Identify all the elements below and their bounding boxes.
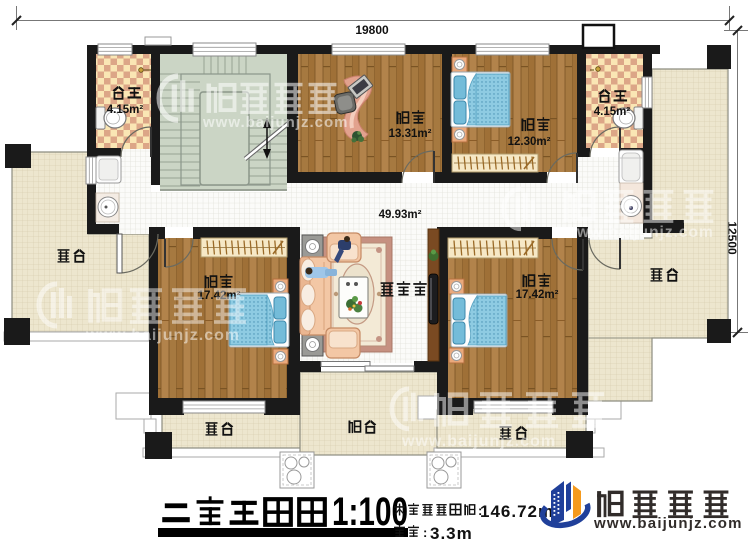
svg-text:4.15m²: 4.15m²	[594, 106, 631, 118]
svg-text:www.baijunjz.com: www.baijunjz.com	[593, 515, 743, 532]
svg-text:146.72m²: 146.72m²	[480, 502, 561, 521]
svg-text:3.3m: 3.3m	[430, 524, 473, 543]
svg-text:www.baijunjz.com: www.baijunjz.com	[85, 327, 240, 344]
svg-text:www.baijunjz.com: www.baijunjz.com	[202, 114, 348, 131]
svg-text:13.31m²: 13.31m²	[389, 128, 432, 140]
svg-text:17.42m²: 17.42m²	[516, 289, 559, 301]
svg-text:12.30m²: 12.30m²	[508, 136, 551, 148]
svg-text:www.baijunjz.com: www.baijunjz.com	[401, 433, 556, 450]
svg-text:4.15m²: 4.15m²	[107, 104, 144, 116]
svg-text:www.baijunjz.com: www.baijunjz.com	[563, 224, 714, 241]
svg-text::: :	[423, 525, 427, 540]
svg-text:19800: 19800	[355, 23, 389, 37]
svg-text:49.93m²: 49.93m²	[379, 209, 422, 221]
